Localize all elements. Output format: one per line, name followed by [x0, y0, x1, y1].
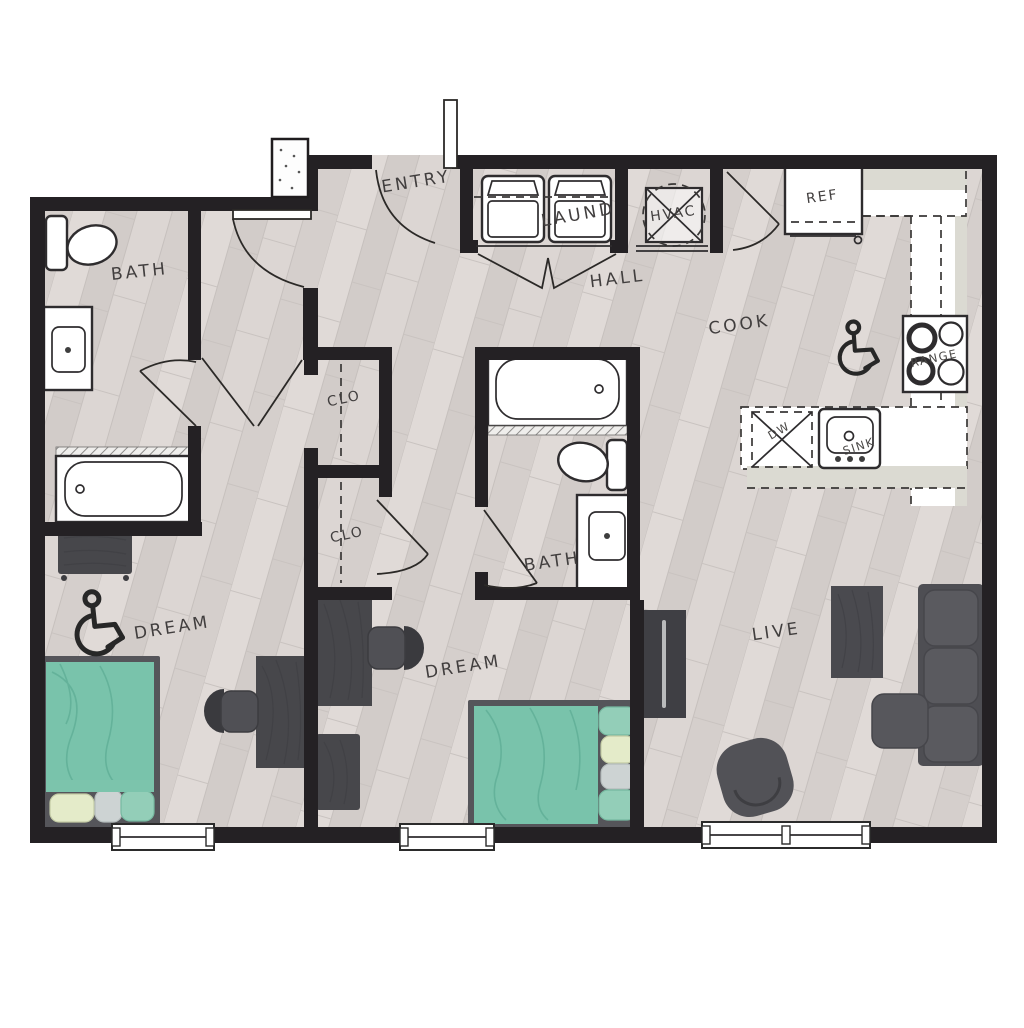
bed-2 [468, 700, 642, 830]
floor-plan-page: BATH ENTRY LAUND HVAC HALL REF COOK RANG… [0, 0, 1024, 1024]
floor-plan: BATH ENTRY LAUND HVAC HALL REF COOK RANG… [0, 0, 1024, 1024]
bath1-bathtub [56, 447, 190, 522]
wall-niche-box [272, 139, 308, 197]
washer [482, 176, 544, 242]
bed-1 [40, 656, 160, 828]
bath2-vanity-sink [577, 495, 632, 590]
window-living [702, 822, 870, 848]
tv-console [644, 610, 686, 718]
desk-1 [256, 656, 308, 768]
desk-chair-2 [368, 626, 424, 670]
window-bedroom2 [400, 824, 494, 850]
bath2-bathtub [488, 352, 627, 435]
coffee-table [831, 586, 883, 678]
dresser-2 [316, 734, 360, 810]
desk-chair-1 [204, 689, 258, 733]
sofa-chaise [872, 694, 928, 748]
bath1-vanity-sink [44, 307, 92, 390]
desk-2 [316, 596, 372, 706]
window-bedroom1 [112, 824, 214, 850]
